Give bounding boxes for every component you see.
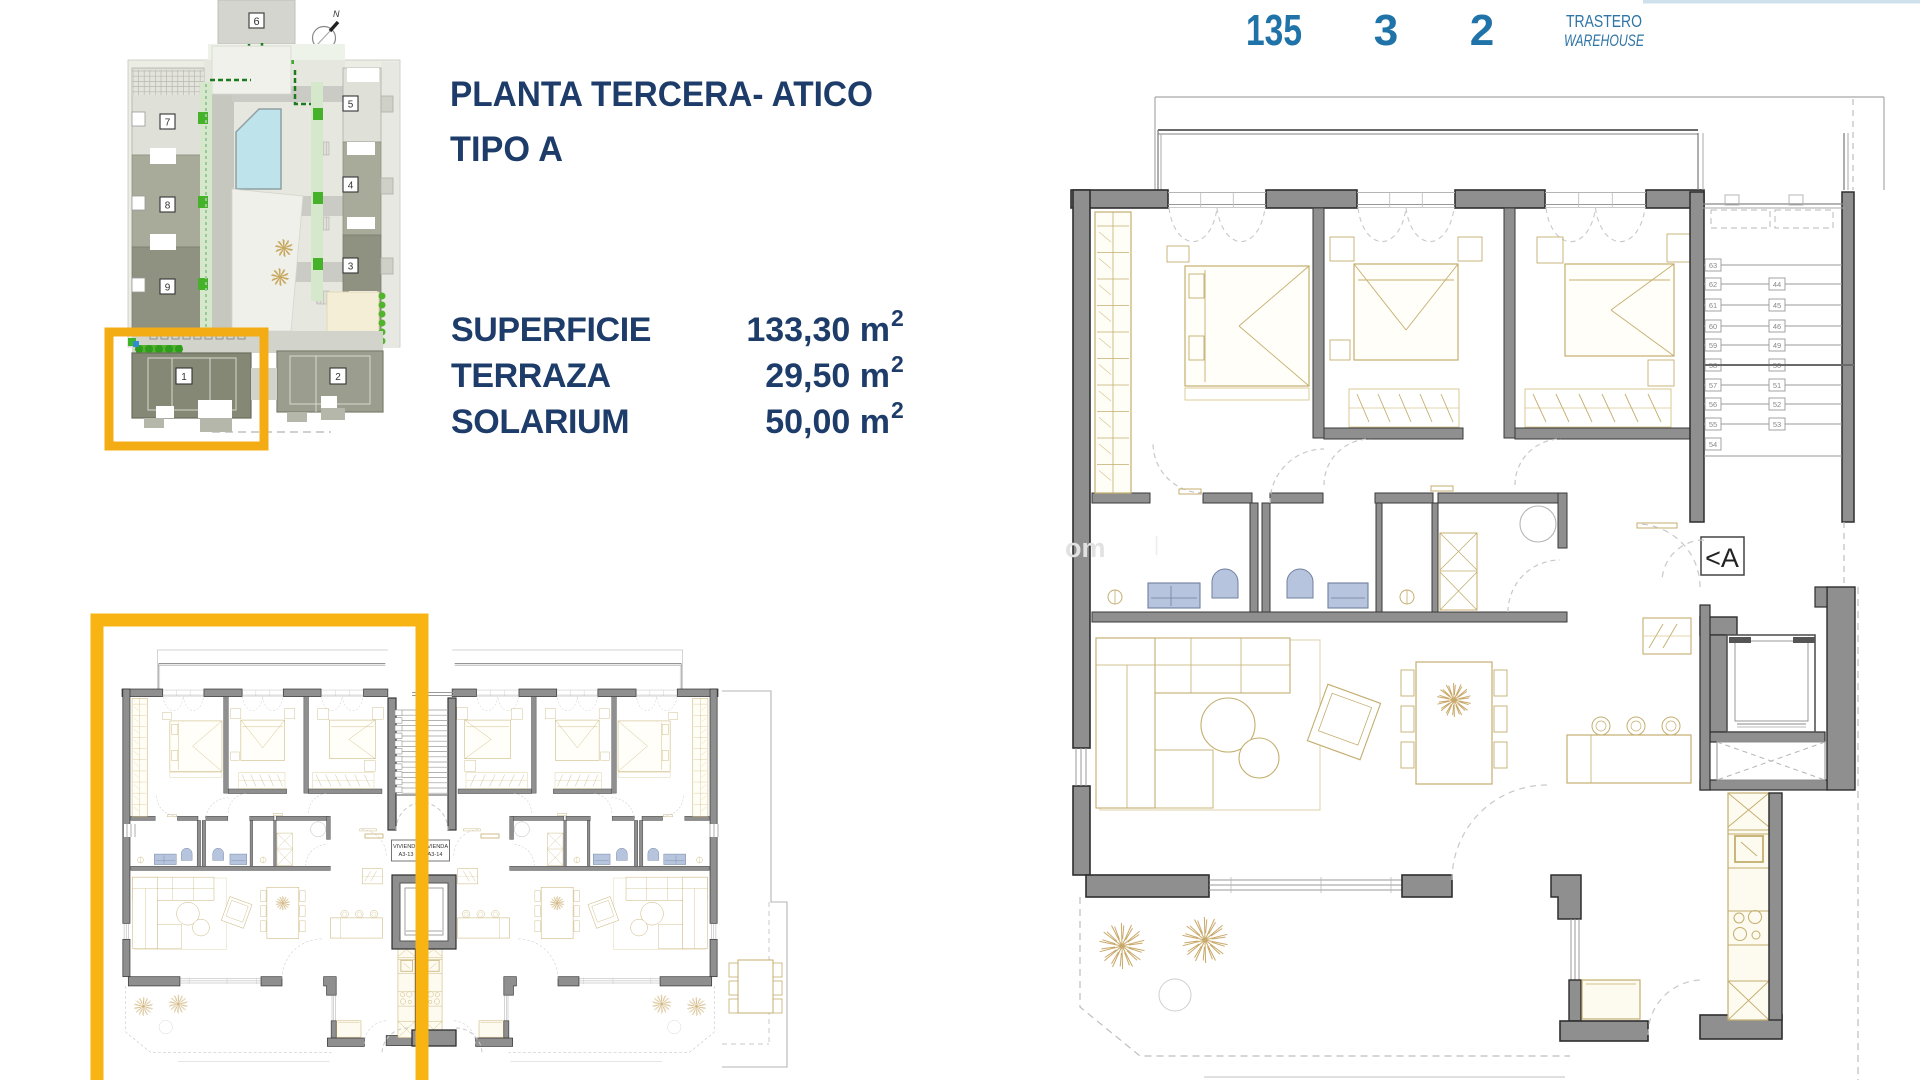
svg-text:56: 56 [1709, 400, 1717, 409]
svg-text:2: 2 [891, 397, 904, 423]
svg-text:59: 59 [1709, 341, 1717, 350]
svg-text:46: 46 [1773, 322, 1781, 331]
svg-text:om: om [1065, 533, 1106, 563]
svg-text:A3-14: A3-14 [428, 852, 443, 858]
svg-text:A3-13: A3-13 [399, 852, 414, 858]
svg-text:TRASTERO: TRASTERO [1566, 11, 1642, 31]
svg-text:VIVIENDA: VIVIENDA [393, 844, 419, 850]
svg-text:51: 51 [1773, 381, 1781, 390]
svg-text:61: 61 [1709, 301, 1717, 310]
svg-text:135: 135 [1246, 6, 1302, 55]
svg-text:8: 8 [165, 201, 171, 212]
svg-text:<A: <A [1705, 543, 1739, 573]
svg-text:53: 53 [1773, 420, 1781, 429]
svg-text:5: 5 [348, 100, 354, 111]
svg-text:TERRAZA: TERRAZA [451, 357, 611, 395]
svg-text:2: 2 [891, 305, 904, 331]
svg-text:SOLARIUM: SOLARIUM [451, 403, 629, 441]
svg-text:N: N [333, 9, 340, 19]
svg-text:63: 63 [1709, 261, 1717, 270]
svg-text:49: 49 [1773, 341, 1781, 350]
svg-text:4: 4 [348, 181, 354, 192]
svg-text:7: 7 [165, 118, 171, 129]
svg-text:TIPO A: TIPO A [450, 129, 563, 169]
svg-text:WAREHOUSE: WAREHOUSE [1564, 32, 1645, 50]
svg-text:60: 60 [1709, 322, 1717, 331]
svg-text:50,00 m: 50,00 m [765, 403, 890, 441]
svg-text:2: 2 [335, 372, 341, 383]
svg-text:57: 57 [1709, 381, 1717, 390]
svg-text:3: 3 [1374, 6, 1398, 55]
svg-text:|: | [1154, 534, 1159, 556]
svg-text:44: 44 [1773, 280, 1781, 289]
svg-text:45: 45 [1773, 301, 1781, 310]
svg-text:54: 54 [1709, 440, 1717, 449]
svg-text:2: 2 [1470, 6, 1494, 55]
svg-text:1: 1 [181, 372, 187, 383]
svg-text:2: 2 [891, 351, 904, 377]
svg-text:62: 62 [1709, 280, 1717, 289]
svg-text:6: 6 [253, 16, 259, 28]
svg-text:29,50 m: 29,50 m [765, 357, 890, 395]
svg-text:52: 52 [1773, 400, 1781, 409]
svg-text:SUPERFICIE: SUPERFICIE [451, 311, 651, 349]
svg-text:3: 3 [348, 262, 354, 273]
svg-text:133,30 m: 133,30 m [746, 311, 890, 349]
svg-text:9: 9 [165, 283, 171, 294]
svg-text:PLANTA TERCERA- ATICO: PLANTA TERCERA- ATICO [450, 74, 873, 114]
svg-text:55: 55 [1709, 420, 1717, 429]
